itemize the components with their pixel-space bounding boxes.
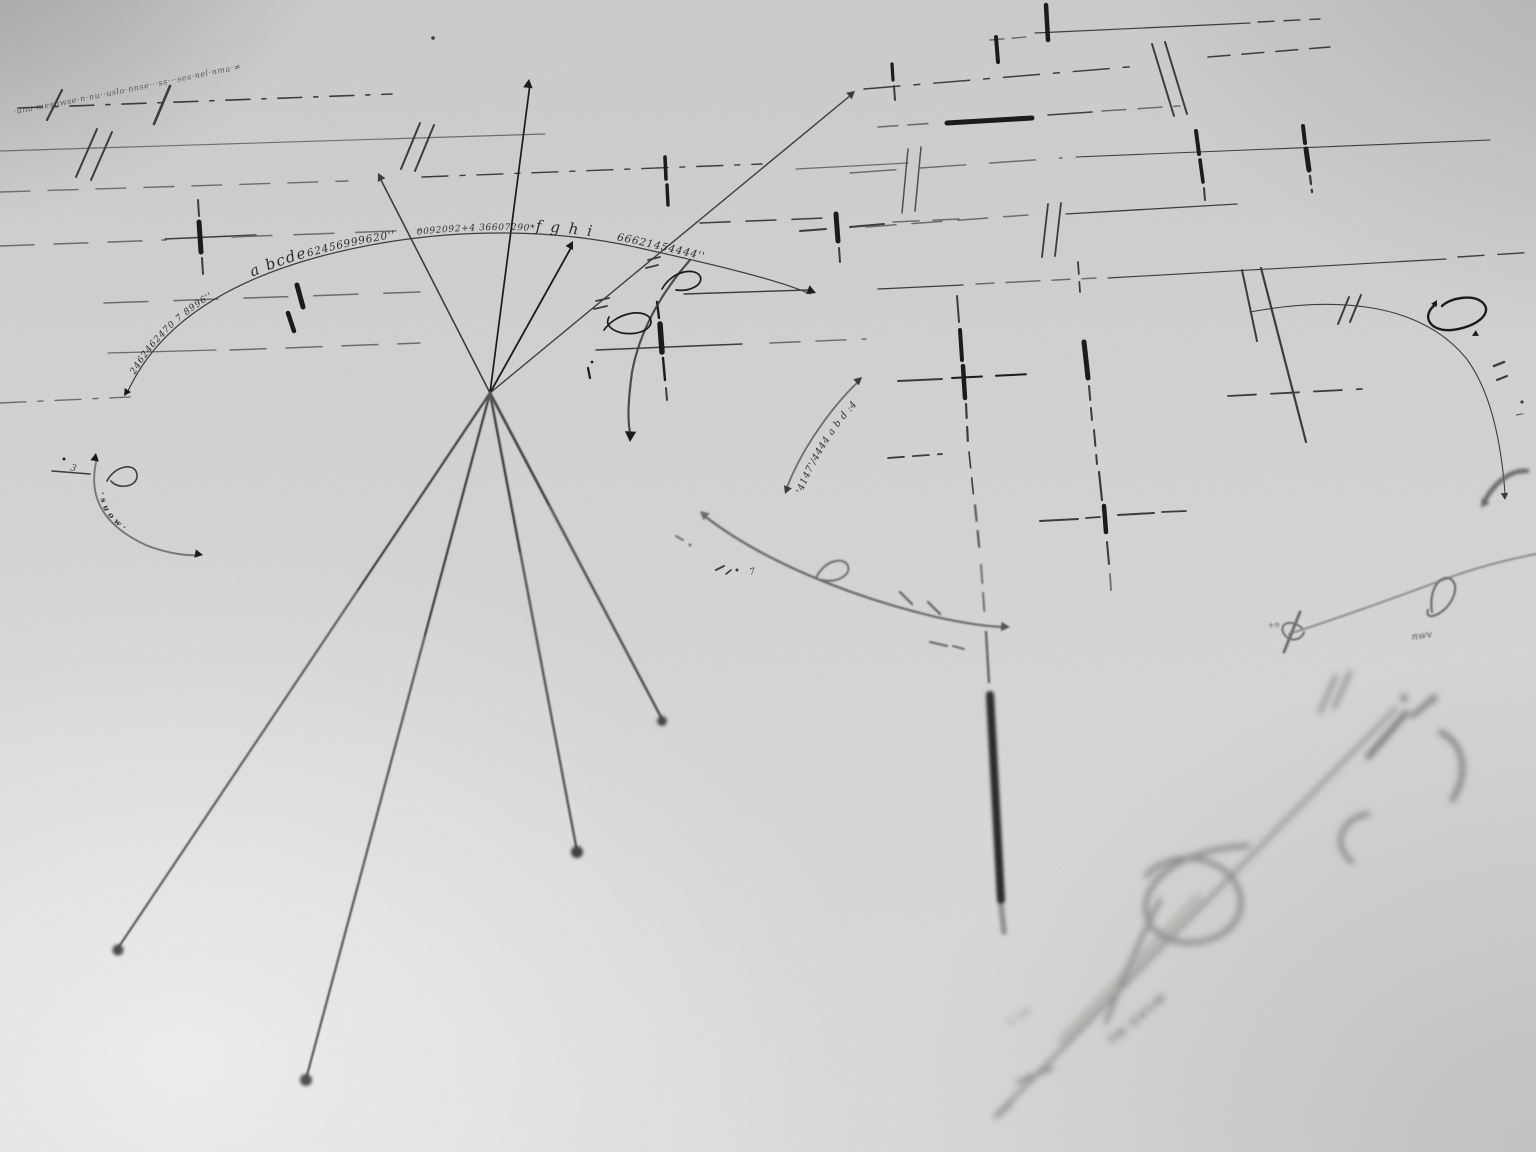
paper-grain-texture — [0, 0, 1536, 1152]
sketch-drawing-canvas: ·una·mesnwse·n·nu··uslo·nnse···ss···ses·… — [0, 0, 1536, 1152]
photo-of-hand-drawn-sketch: ·una·mesnwse·n·nu··uslo·nnse···ss···ses·… — [0, 0, 1536, 1152]
